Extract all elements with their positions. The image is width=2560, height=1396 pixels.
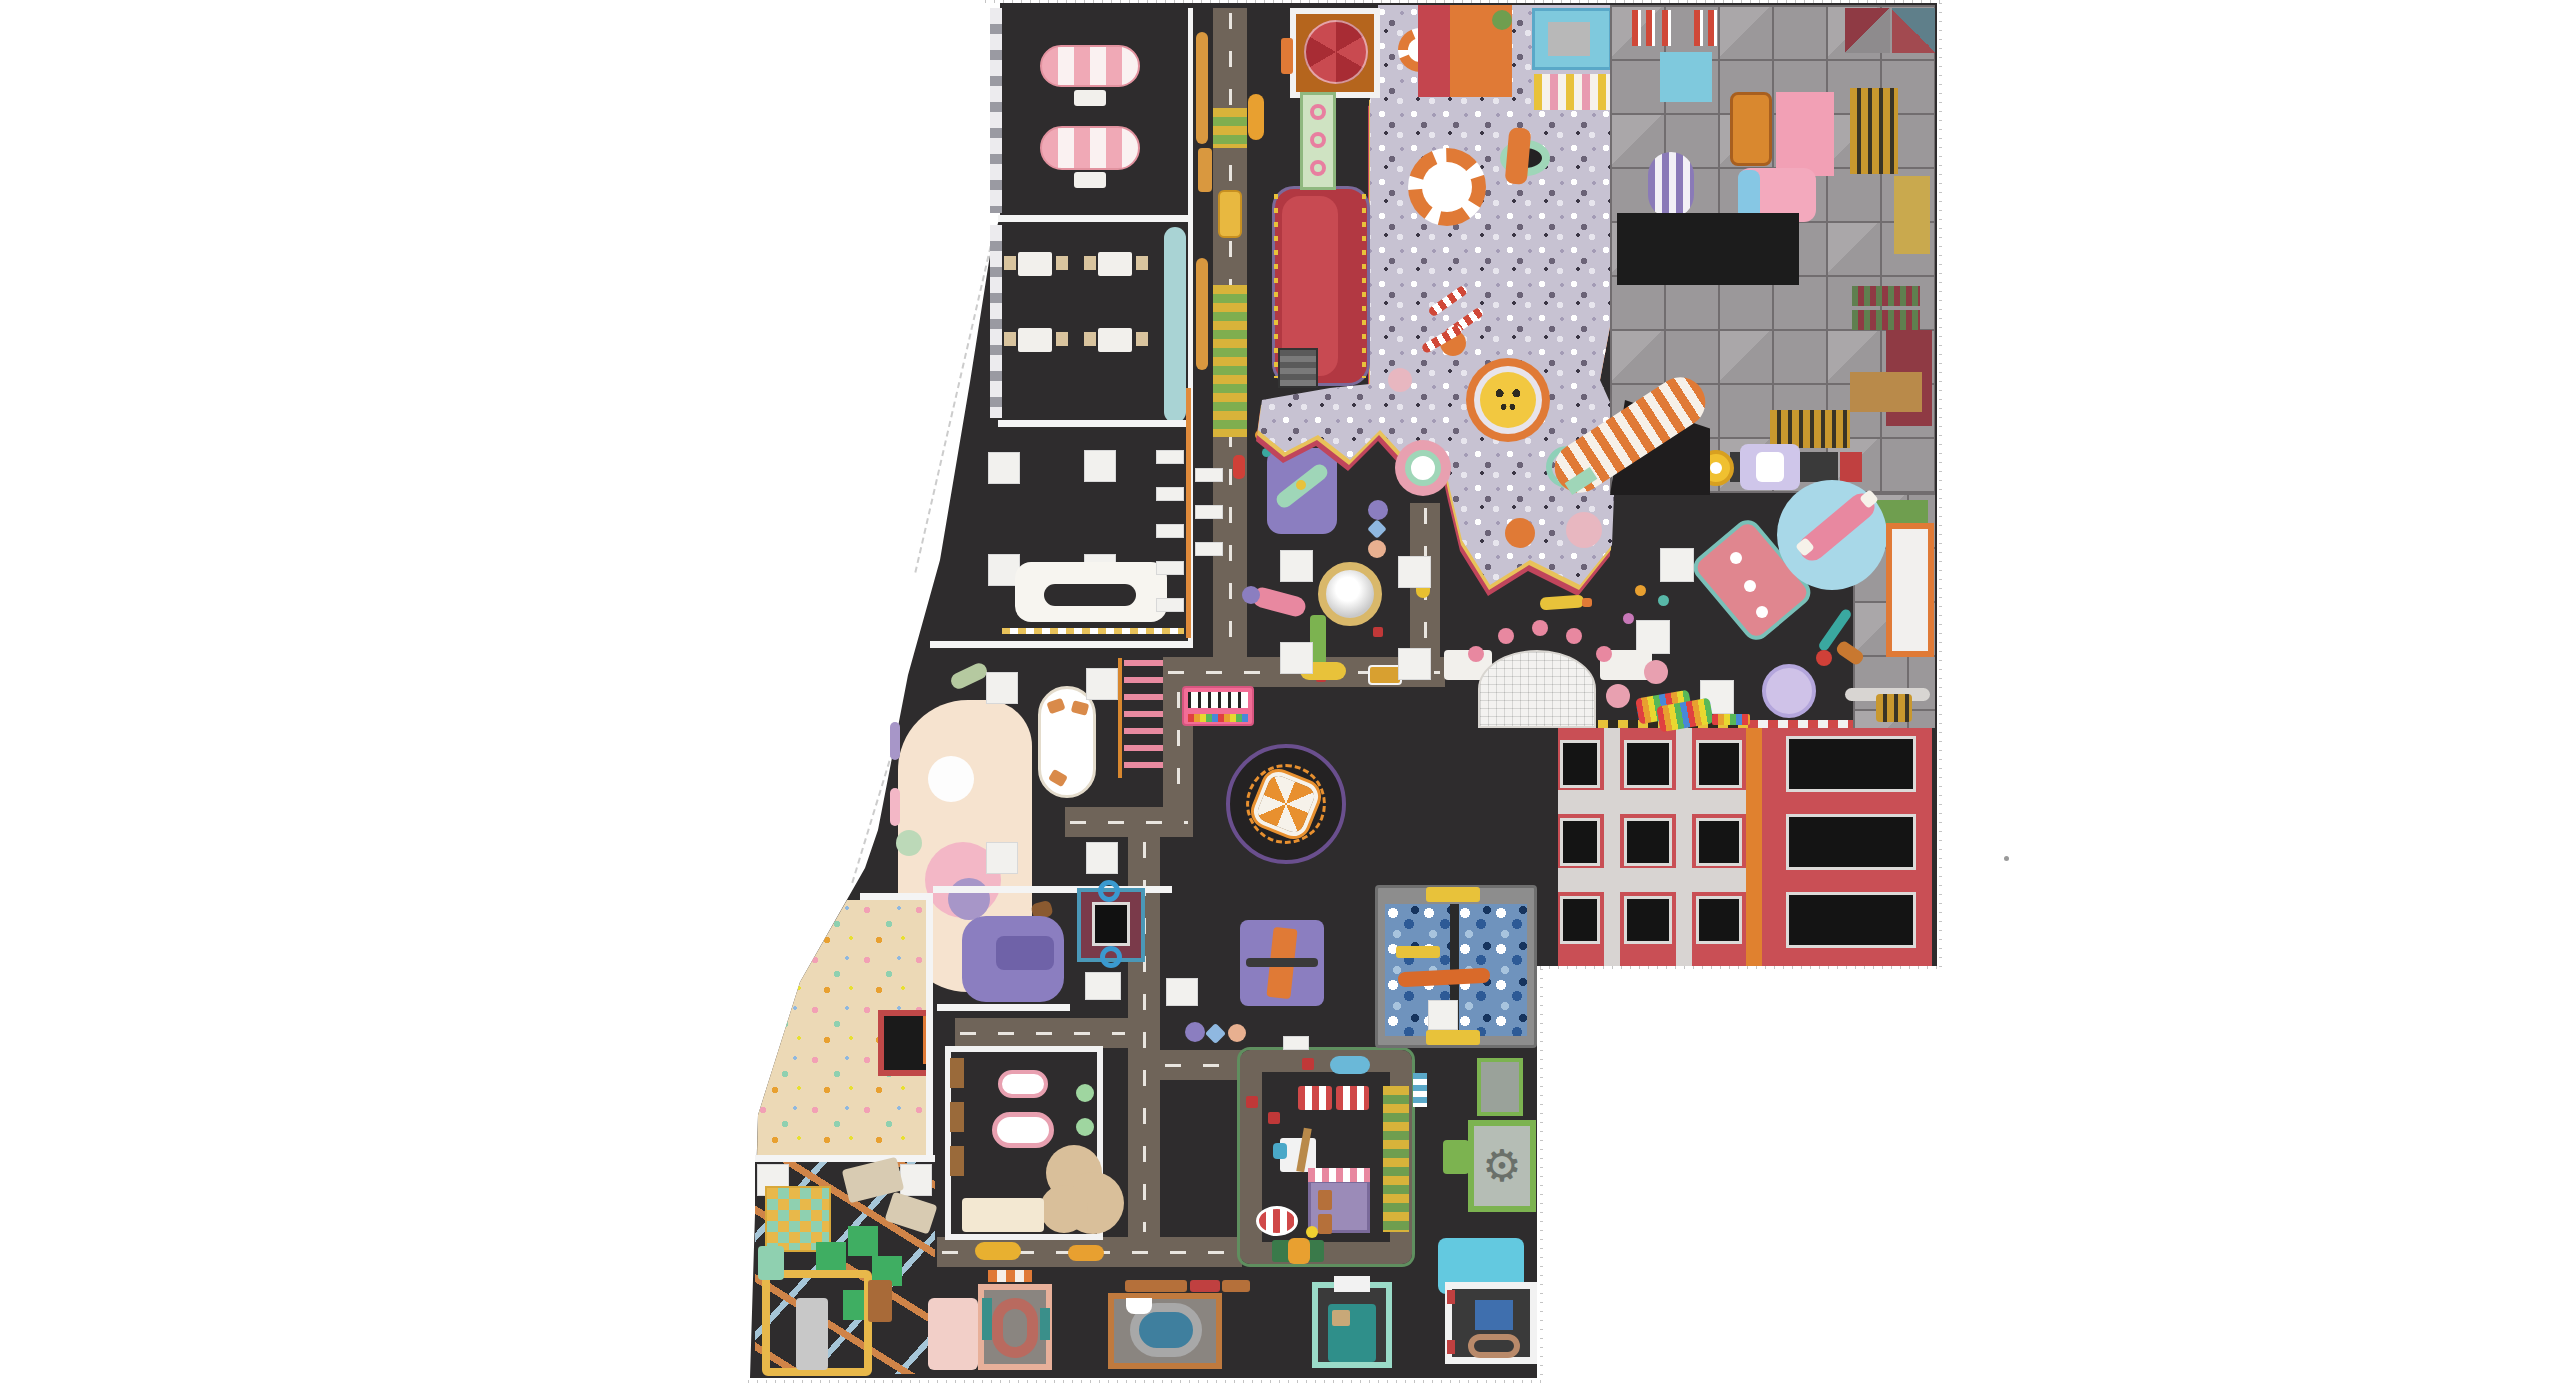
trampoline-walkway	[1676, 728, 1692, 966]
pillar	[1086, 668, 1118, 700]
parking-bench	[1156, 561, 1184, 575]
toddler-slide-bed	[796, 1298, 828, 1370]
dough-mound	[1040, 1185, 1088, 1233]
market-sign	[1302, 1058, 1314, 1070]
floor-mat	[1085, 972, 1121, 1000]
toy-car-table	[998, 1070, 1048, 1098]
dining-chair	[1004, 332, 1016, 346]
wood-plank-red	[1190, 1280, 1220, 1292]
steps-strip	[1383, 1086, 1409, 1232]
pit-ball-orange	[1505, 518, 1535, 548]
octo-sofa	[996, 936, 1054, 970]
market-toy-blue	[1273, 1143, 1287, 1159]
floor-mat	[1280, 550, 1313, 582]
ring-target-center	[1405, 450, 1441, 486]
crayon-tip	[1582, 598, 1592, 607]
mirror-dome	[1318, 562, 1382, 626]
candy-dot	[1658, 595, 1669, 606]
trampoline-bed-wide	[1786, 814, 1916, 870]
panel-pink	[1776, 92, 1834, 176]
room-wall	[937, 1004, 1070, 1011]
classroom-rug	[1468, 1334, 1520, 1358]
round-stall	[1256, 1206, 1298, 1236]
dome-stool	[1566, 628, 1582, 644]
dome-stool	[1532, 620, 1548, 636]
cafe-booth-seat	[1074, 172, 1106, 188]
spinner-bar	[1246, 958, 1318, 967]
bowling-pin	[1632, 10, 1641, 46]
parking-bench	[1156, 450, 1184, 464]
trampoline-ring	[1098, 880, 1120, 902]
school-bus	[1218, 190, 1242, 238]
ladder-end	[1840, 452, 1862, 482]
mallet-toy-ball	[1816, 650, 1832, 666]
parking-bench	[1195, 468, 1223, 482]
yellow-ball	[1306, 1226, 1318, 1238]
striped-mat	[1534, 74, 1612, 110]
cafe-booth-table	[1040, 45, 1140, 87]
parking-bench	[1156, 487, 1184, 501]
dining-chair	[1084, 256, 1096, 270]
dining-chair	[1056, 256, 1068, 270]
bench-small	[1248, 94, 1264, 140]
dining-chair	[1084, 332, 1096, 346]
roller-gold	[1850, 88, 1898, 174]
play-dot-green	[1492, 10, 1512, 30]
stall-awning	[988, 1270, 1032, 1282]
shelf-unit	[950, 1146, 964, 1176]
tent-side	[1281, 38, 1293, 74]
window-wall	[990, 225, 1002, 418]
play-kitchenette	[868, 1280, 892, 1322]
boundary-ticks-right-lower	[1540, 969, 1543, 1381]
play-box-teal-inner	[1548, 22, 1590, 56]
trampoline-bed	[1560, 818, 1600, 866]
wall-bars-rail	[1118, 658, 1122, 778]
window-wall	[990, 8, 1002, 213]
bridge-ring	[1310, 160, 1326, 176]
trampoline-bed	[1624, 896, 1672, 944]
trampoline-walkway	[1558, 868, 1746, 892]
toy-car-table	[992, 1112, 1054, 1148]
foam-pit-step	[1426, 887, 1480, 902]
orange-figure	[1288, 1238, 1310, 1264]
roller-row	[1770, 410, 1850, 448]
road-branch	[955, 1018, 1130, 1048]
dining-chair	[1136, 256, 1148, 270]
playground-floorplan: ⚙	[0, 0, 2560, 1396]
piano-rainbow-keys	[1188, 714, 1248, 722]
pillar	[986, 672, 1018, 704]
toddler-circle	[896, 830, 922, 856]
mint-room-topbox	[1334, 1276, 1370, 1292]
floor-mat	[1660, 548, 1694, 582]
red-tab	[1447, 1290, 1455, 1304]
room-wall	[998, 420, 1190, 427]
roof-tile-diagonal	[1845, 8, 1890, 53]
pillar	[1084, 450, 1116, 482]
toy-train	[1730, 92, 1772, 166]
road-horizontal	[1065, 807, 1193, 837]
castle-dot	[1730, 552, 1742, 564]
shelf-unit	[950, 1102, 964, 1132]
motorbike	[1233, 455, 1245, 479]
dome-stool	[1596, 646, 1612, 662]
pillar	[988, 452, 1020, 484]
trampoline-walkway	[1604, 728, 1620, 966]
corridor-bench	[1196, 258, 1208, 370]
pillar	[1086, 842, 1118, 874]
life-ring	[1408, 148, 1486, 226]
floor-mat	[1428, 1000, 1458, 1030]
floor-mat	[1398, 556, 1431, 588]
bridge-ring	[1310, 104, 1326, 120]
bowling-pin	[1662, 10, 1671, 46]
roller-cylinder	[1648, 152, 1694, 218]
boundary-ticks-step	[1540, 966, 1942, 969]
hotdog-car	[1068, 1245, 1104, 1261]
castle-dot	[1756, 606, 1768, 618]
piano-keys	[1188, 692, 1248, 708]
wood-plank	[1125, 1280, 1187, 1292]
pencil-rollers	[1876, 694, 1912, 722]
machine-side-box	[1443, 1140, 1469, 1174]
kitchen-counter	[962, 1198, 1044, 1232]
pacman-toy	[1368, 500, 1388, 520]
mint-room-chest	[1332, 1310, 1350, 1326]
pink-mat	[928, 1298, 978, 1370]
boundary-ticks-top	[985, 0, 1940, 3]
traffic-sign	[1373, 627, 1383, 637]
boundary-ticks-right	[1939, 3, 1942, 968]
trampoline-bed	[1696, 818, 1742, 866]
drum-cylinder	[1762, 664, 1816, 718]
dining-chair	[1004, 256, 1016, 270]
floor-mat	[1283, 1036, 1309, 1050]
road-link	[1160, 1050, 1242, 1080]
dining-table	[1098, 328, 1132, 352]
lego-baseplate	[816, 1242, 846, 1272]
roof-tile-diagonal	[1892, 8, 1935, 53]
trampoline-bed	[1560, 740, 1600, 788]
dining-table	[1018, 252, 1052, 276]
square-trampoline-bed	[1092, 902, 1130, 946]
seesaw-hub	[1296, 480, 1306, 490]
caterpillar-toy	[975, 1242, 1021, 1260]
play-box-red	[1418, 5, 1450, 97]
stage-steps	[1278, 348, 1318, 388]
dining-table	[1098, 252, 1132, 276]
red-tab	[1447, 1340, 1455, 1354]
classroom-table	[1475, 1300, 1513, 1330]
shop-chair	[1318, 1214, 1332, 1234]
foam-pit-step	[1426, 1030, 1480, 1045]
map-dot-artifact	[2004, 856, 2009, 861]
trampoline-bed-wide	[1786, 892, 1916, 948]
room-wall	[926, 896, 933, 1158]
toddler-circle	[928, 756, 974, 802]
corridor-bench	[1196, 32, 1208, 144]
trampoline-bed	[1560, 896, 1600, 944]
counter-trim	[1002, 628, 1184, 634]
crosswalk	[1213, 285, 1247, 437]
nap-pod-center	[1756, 452, 1784, 482]
roller-slide	[1886, 523, 1934, 657]
room-wall	[860, 893, 933, 900]
cargo-net	[1850, 372, 1922, 412]
whale-toy	[1330, 1056, 1370, 1074]
room-wall	[930, 641, 1192, 648]
lego-baseplate	[848, 1226, 878, 1256]
pit-ball-pink	[1566, 512, 1602, 548]
tent-umbrella	[1304, 20, 1368, 84]
dining-bench	[1164, 227, 1186, 423]
pillar	[986, 842, 1018, 874]
floor-mat	[1166, 978, 1198, 1006]
trampoline-walkway-orange	[1746, 728, 1762, 966]
floor-mat	[1636, 620, 1670, 654]
trampoline-bed	[1696, 740, 1742, 788]
service-counter-well	[1044, 584, 1136, 606]
market-sign	[1246, 1096, 1258, 1108]
machine-panel	[1477, 1058, 1523, 1116]
trampoline-bed-wide	[1786, 736, 1916, 792]
dome-stool	[1498, 628, 1514, 644]
pouf	[1606, 684, 1630, 708]
market-sign	[1268, 1112, 1280, 1124]
toddler-tab	[890, 788, 900, 826]
dining-chair	[1056, 332, 1068, 346]
bowling-pin	[1708, 10, 1717, 46]
dining-table	[1018, 328, 1052, 352]
stool-green	[1076, 1118, 1094, 1136]
striped-post	[1413, 1073, 1427, 1107]
bowling-pin	[1694, 10, 1703, 46]
cargo-strip	[1852, 310, 1920, 330]
foam-step-small	[1396, 946, 1440, 958]
cafe-booth-table	[1040, 126, 1140, 170]
parking-bench	[1156, 524, 1184, 538]
room-wall	[755, 1155, 935, 1162]
dining-chair	[1136, 332, 1148, 346]
panel-blue	[1660, 52, 1712, 102]
toddler-circle	[948, 878, 990, 920]
pouf	[1644, 660, 1668, 684]
floor-mat	[1280, 642, 1313, 674]
castle-dot	[1744, 580, 1756, 592]
pit-ball-pink	[1388, 368, 1412, 392]
trampoline-bed	[1696, 896, 1742, 944]
trampoline-walkway	[1558, 790, 1746, 814]
toddler-tab	[890, 722, 900, 760]
zip-track	[1617, 213, 1799, 285]
boundary-ticks-bottom	[748, 1380, 1543, 1383]
canopy-lights	[1362, 194, 1366, 378]
corridor-bench	[1198, 148, 1212, 192]
block-bin	[758, 1246, 784, 1280]
dome-tent	[1478, 650, 1596, 728]
candy-buttons	[1712, 714, 1750, 725]
smiley-ball	[1480, 372, 1536, 428]
parking-bench	[1195, 542, 1223, 556]
gear-icon: ⚙	[1474, 1136, 1530, 1196]
candy-dot	[1635, 585, 1646, 596]
trampoline-bed	[1624, 818, 1672, 866]
cargo-strip	[1852, 286, 1920, 306]
guard-fence	[1186, 388, 1191, 638]
bowling-pin	[1646, 10, 1655, 46]
bench-teal	[982, 1298, 992, 1340]
pillar	[900, 1164, 932, 1196]
shop-chair	[1318, 1190, 1332, 1210]
room-wall	[998, 215, 1190, 222]
candy-dot	[1623, 613, 1634, 624]
floor-mat	[1398, 648, 1431, 680]
pacman-toy	[1185, 1022, 1205, 1042]
cafe-booth-seat	[1074, 90, 1106, 106]
market-stall-awning	[1298, 1086, 1332, 1110]
caterpillar-head	[1242, 586, 1260, 604]
trampoline-bed	[1624, 740, 1672, 788]
bench-teal	[1040, 1308, 1050, 1340]
stool-green	[1076, 1084, 1094, 1102]
steering-wheel-hub	[1710, 462, 1722, 474]
dome-stool	[1468, 646, 1484, 662]
parking-bench	[1156, 598, 1184, 612]
market-stall-awning	[1336, 1086, 1369, 1110]
race-track-oval	[992, 1298, 1038, 1358]
floorplan-canvas: ⚙	[0, 0, 2560, 1396]
wood-plank	[1222, 1280, 1250, 1292]
trampoline-ring	[1100, 946, 1122, 968]
parking-bench	[1195, 505, 1223, 519]
crown-prop	[1126, 1298, 1152, 1314]
pacman-toy	[1368, 540, 1386, 558]
pacman-toy	[1228, 1024, 1246, 1042]
bridge-ring	[1310, 132, 1326, 148]
crosswalk	[1213, 108, 1247, 148]
shelf-unit	[950, 1058, 964, 1088]
toy-shop-awning	[1308, 1168, 1370, 1182]
mesh-panel-yellow	[1894, 176, 1930, 254]
gold-cart	[1368, 665, 1402, 685]
